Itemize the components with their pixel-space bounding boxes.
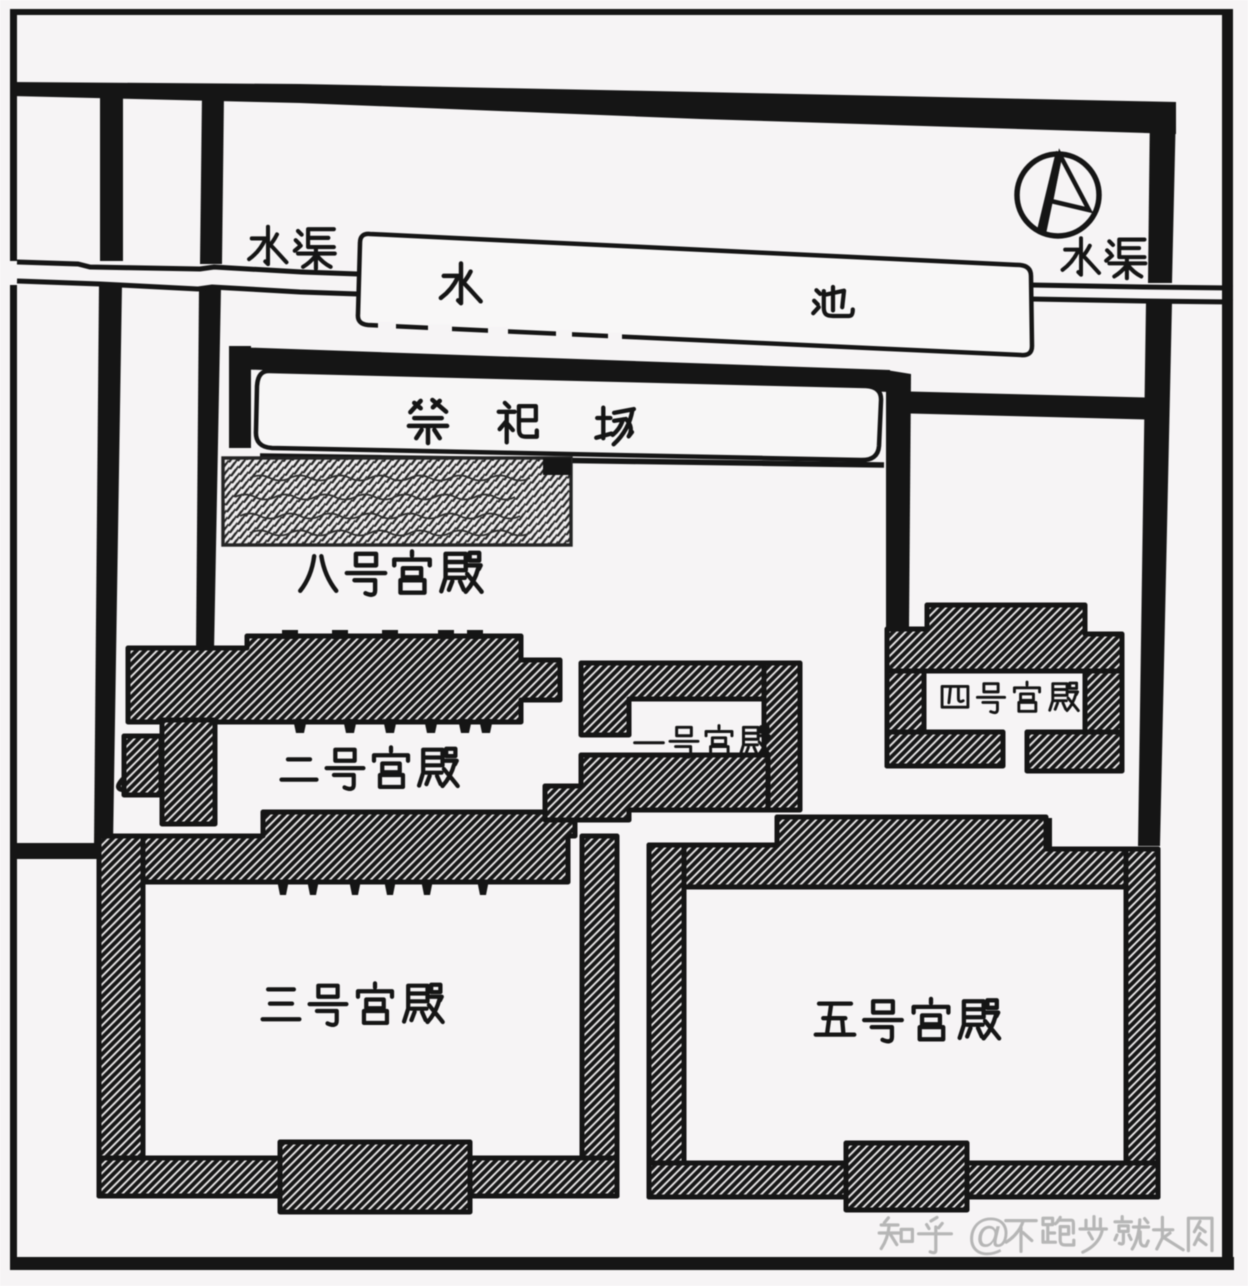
svg-text:@: @ xyxy=(967,1210,1012,1259)
